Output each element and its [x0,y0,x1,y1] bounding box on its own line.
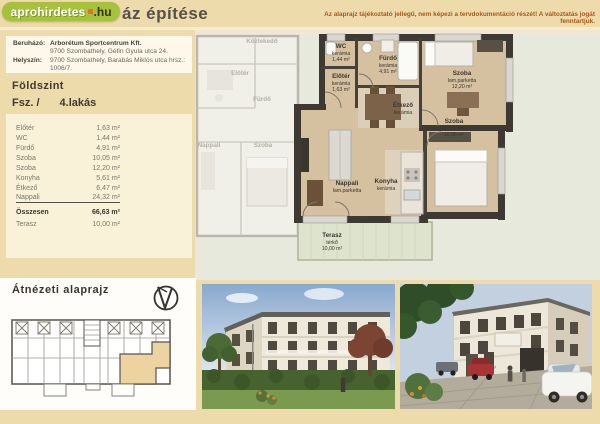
room-label: Előtér [16,125,34,132]
developer-row: Beruházó: Arborétum Sportcentrum Kft. 97… [13,40,188,55]
room-area: 5,61 m² [96,175,120,182]
disclaimer-text: Az alaprajz tájékoztató jellegű, nem kép… [295,11,595,25]
stairwell [84,320,100,346]
north-arrow-icon [151,280,181,312]
floor-plan: WC kerámia 1,44 m² Előtér kerámia 1,63 m… [195,30,600,280]
logo-dot-icon [88,9,93,14]
room-area: 24,32 m² [92,194,120,201]
room-label-szoba-felso: Szoba lam.parketta 12,20 m² [437,70,487,90]
total-label: Összesen [16,209,49,216]
room-area: 6,47 m² [96,185,120,192]
unit-level-prefix: Fsz. / [12,97,40,109]
developer-label: Beruházó: [13,40,50,55]
room-label: Étkező [16,185,37,192]
overview-plan-drawing [8,314,180,406]
table-row: Szoba 10,05 m² [16,153,120,163]
overview-heading: Átnézeti alaprajz [12,284,109,296]
photo-garden-view [202,284,395,409]
room-label: Szoba [16,155,36,162]
unit-flat-number: 4.lakás [60,97,97,109]
room-label: Szoba [16,165,36,172]
room-label-konyha: Konyha kerámia [361,178,411,192]
location-value: 9700 Szombathely, Barabás Miklós utca hr… [50,57,188,72]
logo-suffix: .hu [94,5,112,19]
room-area: 10,05 m² [92,155,120,162]
logo-text: aprohirdetes [10,5,85,19]
room-label-eloter: Előtér kerámia 1,63 m² [316,73,366,93]
room-area: 1,63 m² [96,125,120,132]
room-label: Nappali [16,194,40,201]
developer-value: Arborétum Sportcentrum Kft. 9700 Szombat… [50,40,188,55]
room-area: 12,20 m² [92,165,120,172]
flyer-page: áz építése aprohirdetes.hu Az alaprajz t… [0,0,600,424]
floor-title: Földszint [12,80,64,92]
table-row: WC 1,44 m² [16,133,120,143]
page-title: áz építése [122,4,208,24]
total-value: 66,63 m² [92,209,120,216]
room-label-etkezo: Étkező kerámia [378,102,428,116]
room-label: Fürdő [16,145,34,152]
developer-info-panel: Beruházó: Arborétum Sportcentrum Kft. 97… [6,36,192,73]
location-row: Helyszín: 9700 Szombathely, Barabás Mikl… [13,57,188,72]
room-label-terasz: Terasz térkő 10,00 m² [307,232,357,252]
hedge-and-lawn [202,369,395,409]
photo-street-view [400,284,592,409]
unit-line: Fsz. / 4.lakás [12,97,96,109]
room-label: Konyha [16,175,40,182]
adjacent-label-szoba: Szoba [238,142,288,150]
terrace-value: 10,00 m² [92,221,120,228]
developer-address: 9700 Szombathely, Géfin Gyula utca 24. [50,48,188,56]
adjacent-label-nappali: Nappali [189,142,229,150]
room-area: 4,91 m² [96,145,120,152]
developer-name: Arborétum Sportcentrum Kft. [50,40,188,48]
room-label-wc: WC kerámia 1,44 m² [316,43,366,63]
table-row: Fürdő 4,91 m² [16,143,120,153]
room-label-furdo: Fürdő kerámia 4,91 m² [363,55,413,75]
adjacent-apartment [195,34,299,238]
total-row: Összesen 66,63 m² [16,207,120,217]
room-area: 1,44 m² [96,135,120,142]
ground-terraces [44,384,134,396]
adjacent-label-eloter: Előtér [215,70,265,78]
garden-render [202,284,395,409]
table-row: Konyha 5,61 m² [16,173,120,183]
room-label-szoba-also: Szoba lam.parketta 10,05 m² [429,118,479,138]
aprohirdetes-logo: aprohirdetes.hu [2,2,120,21]
street-render [400,284,592,409]
lamp-post [252,324,254,372]
terrace-label: Terasz [16,221,37,228]
table-row: Étkező 6,47 m² [16,183,120,193]
table-row: Előtér 1,63 m² [16,123,120,133]
table-row: Nappali 24,32 m² [16,193,120,203]
table-row: Szoba 12,20 m² [16,163,120,173]
adjacent-label-kozlekedo: Közlekedő [237,38,287,46]
terrace-row: Terasz 10,00 m² [16,219,120,229]
overview-panel: Átnézeti alaprajz [0,278,196,410]
room-label: WC [16,135,28,142]
person [341,378,346,393]
adjacent-label-furdo: Fürdő [237,96,287,104]
location-label: Helyszín: [13,57,50,72]
room-area-table: Előtér 1,63 m² WC 1,44 m² Fürdő 4,91 m² … [6,114,192,258]
